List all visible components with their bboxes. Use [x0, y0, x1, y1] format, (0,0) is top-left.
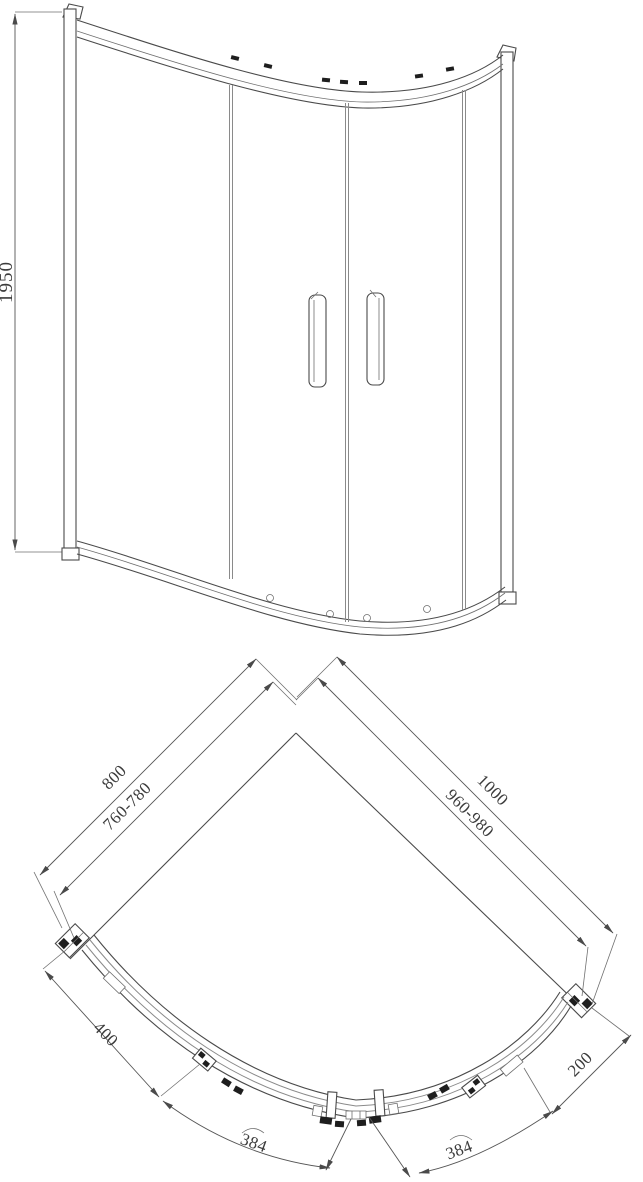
door-hanger-blocks [231, 55, 455, 85]
left-door-arc-label: 384 [238, 1129, 270, 1156]
right-clearance-label: 200 [564, 1048, 597, 1081]
left-roller-pair [221, 1077, 244, 1095]
height-dimension-label: 1950 [0, 261, 17, 303]
right-wall-line [296, 733, 584, 1010]
dimension-right-clearance-200: 200 [524, 1008, 631, 1114]
right-wall-profile [497, 45, 516, 604]
left-mid-bracket [103, 972, 125, 994]
glass-panel-dividers [230, 85, 466, 622]
curved-glass-tracks [82, 935, 571, 1118]
bottom-rail [77, 541, 506, 635]
plan-left-handle [326, 1092, 337, 1119]
right-door-arc-label: 384 [443, 1136, 475, 1163]
dimension-right-door-arc-384: 384 [369, 1111, 553, 1177]
plan-view: 800 760-780 1000 960-980 400 [34, 657, 631, 1177]
dimension-left-clearance-400: 400 [43, 950, 200, 1097]
elevation-view: 1950 [0, 4, 516, 635]
left-wall-profile [62, 4, 83, 560]
right-overall-label: 1000 [473, 771, 512, 810]
top-rail [77, 20, 503, 108]
dimension-height-1950: 1950 [0, 12, 62, 552]
left-door-handle [309, 292, 326, 387]
left-overall-label: 800 [98, 761, 131, 794]
left-wall-line [70, 733, 296, 959]
door-meeting-detail [312, 1090, 399, 1128]
dimension-right-overall-1000: 1000 [297, 657, 617, 1004]
right-door-handle [367, 290, 384, 385]
dimension-left-adjustment-760-780: 760-780 [54, 682, 296, 938]
technical-drawing: 1950 [0, 0, 643, 1182]
plan-right-handle [374, 1090, 385, 1117]
left-clearance-label: 400 [90, 1018, 123, 1051]
dimension-left-overall-800: 800 [34, 659, 297, 928]
dimension-right-adjustment-960-980: 960-980 [296, 678, 588, 996]
